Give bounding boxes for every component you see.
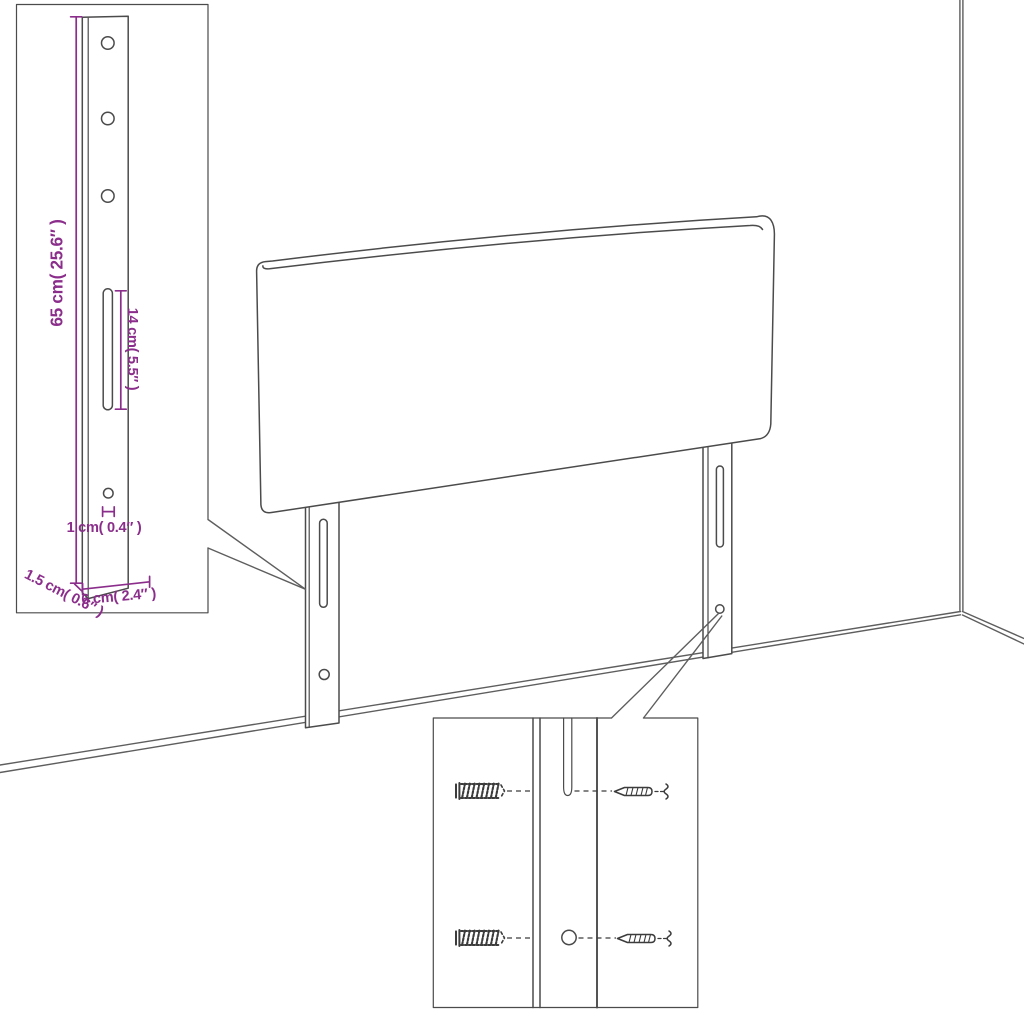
headboard-panel [257,216,775,513]
mounting-hole [102,190,115,203]
wall-plug-icon [456,930,505,946]
leg-slot [564,718,572,796]
floor-edge-left [0,612,961,773]
leg-screw-hole [562,930,576,944]
mounting-hole [102,37,115,50]
leg-screw-hole [716,605,724,613]
wall-plug-icon [456,783,505,799]
dimension-label-height: 65 cm( 25.6″ ) [47,219,67,326]
screw-icon [618,931,672,946]
dimension-label-hole: 1 cm( 0.4″ ) [67,520,142,536]
callout-line [644,616,722,718]
floor-edge-right [963,612,1024,645]
dimension-label-slot: 14 cm( 5.5″ ) [124,308,140,391]
left-mounting-leg [306,497,340,728]
callout-line [612,614,719,719]
diagram-canvas: 65 cm( 25.6″ ) 14 cm( 5.5″ ) 1 cm( 0.4″ … [0,0,1024,1024]
leg-slot [320,519,328,607]
assembly-diagram: 65 cm( 25.6″ ) 14 cm( 5.5″ ) 1 cm( 0.4″ … [0,0,1024,1024]
leg-slot [716,466,723,547]
leg-strip-edges [533,718,540,1008]
wall-corner-edge [960,0,963,611]
headboard [257,216,775,513]
inset-frame [433,718,698,1008]
leg-screw-hole [319,670,329,680]
screw-icon [615,784,669,799]
mounting-hole [102,112,115,125]
small-screw-hole [104,488,114,498]
dimension-line-height [71,17,82,583]
leg-slot [103,289,112,410]
